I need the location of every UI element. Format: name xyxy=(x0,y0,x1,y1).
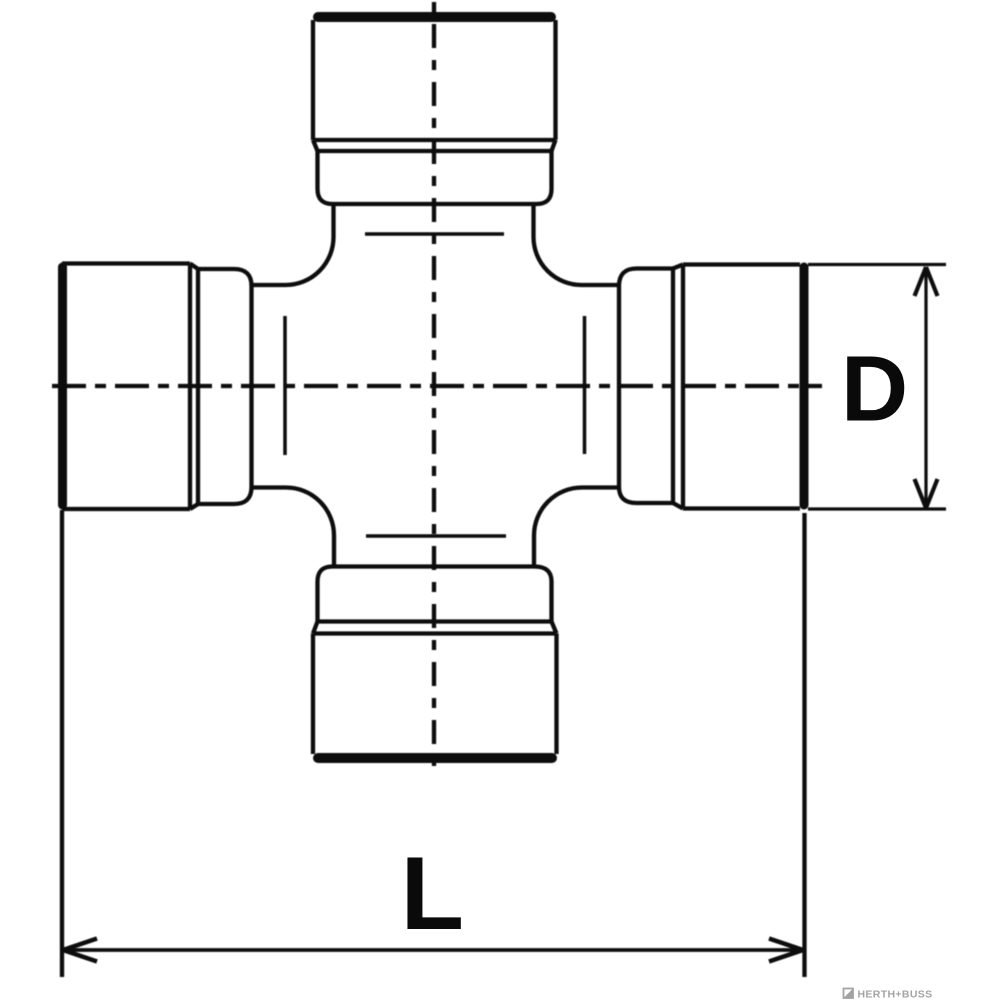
svg-text:HERTH+BUSS: HERTH+BUSS xyxy=(858,989,933,1000)
svg-text:L: L xyxy=(401,836,465,952)
svg-text:D: D xyxy=(841,337,908,441)
